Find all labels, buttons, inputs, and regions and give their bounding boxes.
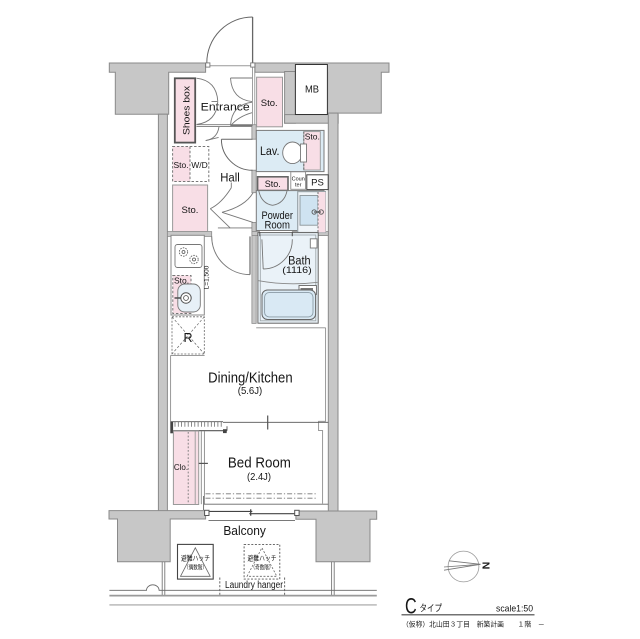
svg-text:Sto.: Sto.	[173, 160, 188, 170]
svg-text:タイプ: タイプ	[420, 604, 443, 615]
svg-text:Clo.: Clo.	[174, 463, 188, 472]
svg-text:Bed Room: Bed Room	[228, 455, 291, 472]
svg-text:Sto.: Sto.	[265, 179, 281, 189]
svg-text:PS: PS	[311, 178, 324, 189]
svg-text:Balcony: Balcony	[223, 524, 266, 538]
svg-text:(2.4J): (2.4J)	[247, 471, 271, 483]
svg-text:Shoes box: Shoes box	[182, 85, 192, 135]
svg-text:W/D: W/D	[191, 160, 208, 170]
svg-text:Hall: Hall	[220, 172, 240, 184]
svg-text:MB: MB	[305, 83, 319, 95]
svg-text:Room: Room	[264, 219, 290, 231]
svg-text:N: N	[480, 562, 492, 570]
svg-text:（偶数階）: （偶数階）	[184, 564, 207, 572]
svg-text:(5.6J): (5.6J)	[238, 385, 263, 397]
svg-text:Sto.: Sto.	[261, 98, 278, 109]
svg-text:（奇数階）: （奇数階）	[251, 564, 274, 572]
svg-text:ter: ter	[295, 182, 302, 188]
svg-text:（仮称）北山田３丁目 新築計画 １階 －: （仮称）北山田３丁目 新築計画 １階 －	[402, 620, 545, 629]
svg-text:避難ハッチ: 避難ハッチ	[248, 554, 277, 563]
svg-text:Sto.: Sto.	[182, 205, 199, 216]
svg-text:Sto.: Sto.	[305, 132, 320, 142]
svg-text:scale1:50: scale1:50	[496, 604, 533, 615]
svg-text:Lav.: Lav.	[260, 146, 280, 158]
svg-text:避難ハッチ: 避難ハッチ	[181, 554, 210, 563]
svg-text:L=1,500: L=1,500	[204, 265, 211, 289]
svg-text:Laundry hanger: Laundry hanger	[225, 580, 284, 591]
svg-text:(1116): (1116)	[282, 265, 312, 276]
svg-text:R: R	[183, 331, 192, 345]
svg-text:Entrance: Entrance	[201, 102, 250, 114]
svg-text:C: C	[405, 594, 417, 619]
